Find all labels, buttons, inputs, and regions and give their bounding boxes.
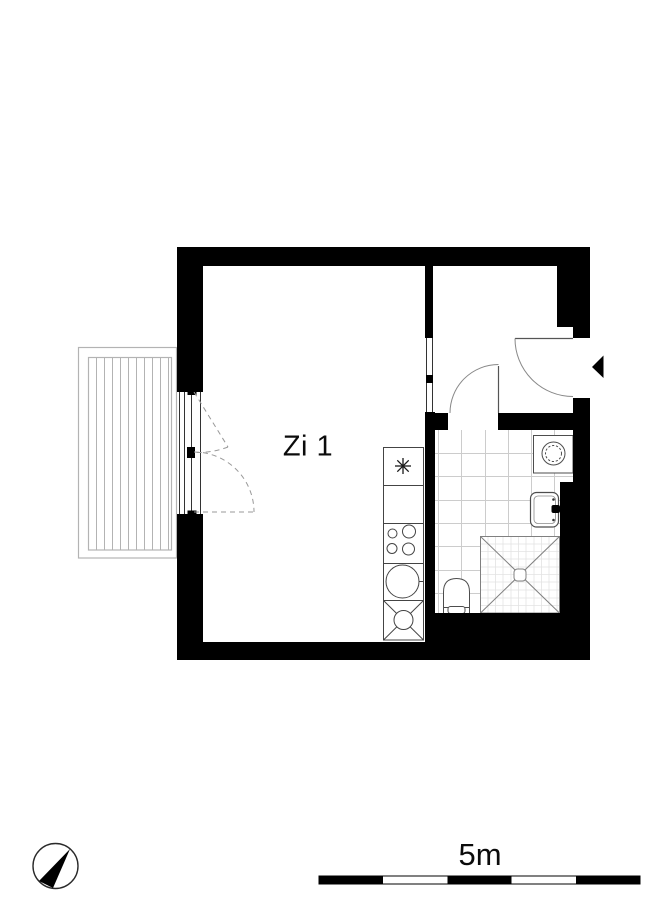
entrance-door	[515, 339, 573, 397]
wall-divider-lower	[425, 412, 435, 660]
wall-right-lower	[560, 482, 590, 613]
wall-pillar-outer	[573, 266, 590, 338]
balcony-door-swing	[194, 392, 254, 512]
wall-top	[177, 247, 590, 266]
wall-left-lower	[177, 514, 203, 660]
wall-divider-upper	[425, 266, 433, 338]
shower-drain	[514, 569, 526, 581]
scale-bar	[319, 876, 640, 884]
interior-opening	[426, 338, 433, 412]
wall-pillar-inner	[557, 266, 573, 327]
compass-icon	[33, 844, 78, 889]
room-label: Zi 1	[283, 431, 333, 464]
wall-bath-bottom-band	[435, 613, 590, 660]
floor-plan-drawing	[0, 0, 672, 908]
balcony-door	[180, 389, 255, 517]
compass-needle	[39, 849, 70, 888]
entrance-arrow-icon	[592, 356, 604, 379]
wall-right-mid	[573, 398, 590, 482]
wall-bath-top-right	[498, 413, 573, 430]
toilet	[444, 579, 470, 614]
kitchenette	[384, 448, 425, 641]
balcony	[79, 348, 177, 559]
balcony-deck-hatching	[97, 358, 169, 551]
scale-label: 5m	[458, 837, 501, 873]
floor-plan-page: Zi 1 5m	[0, 0, 672, 908]
shower	[481, 537, 560, 614]
wall-bath-top-left	[433, 413, 448, 430]
asterisk-symbol	[395, 458, 411, 474]
bathroom-door	[450, 365, 499, 414]
bathroom-sink	[531, 493, 561, 528]
sink-faucet	[552, 505, 561, 513]
wall-left-upper	[177, 266, 203, 392]
washing-machine	[534, 436, 574, 474]
